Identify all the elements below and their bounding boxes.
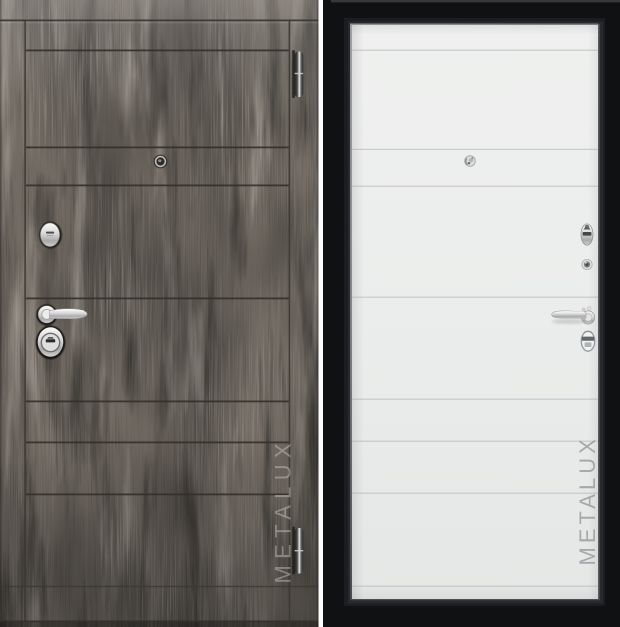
- svg-text:METALUX: METALUX: [575, 435, 600, 565]
- svg-text:METALUX: METALUX: [271, 437, 296, 583]
